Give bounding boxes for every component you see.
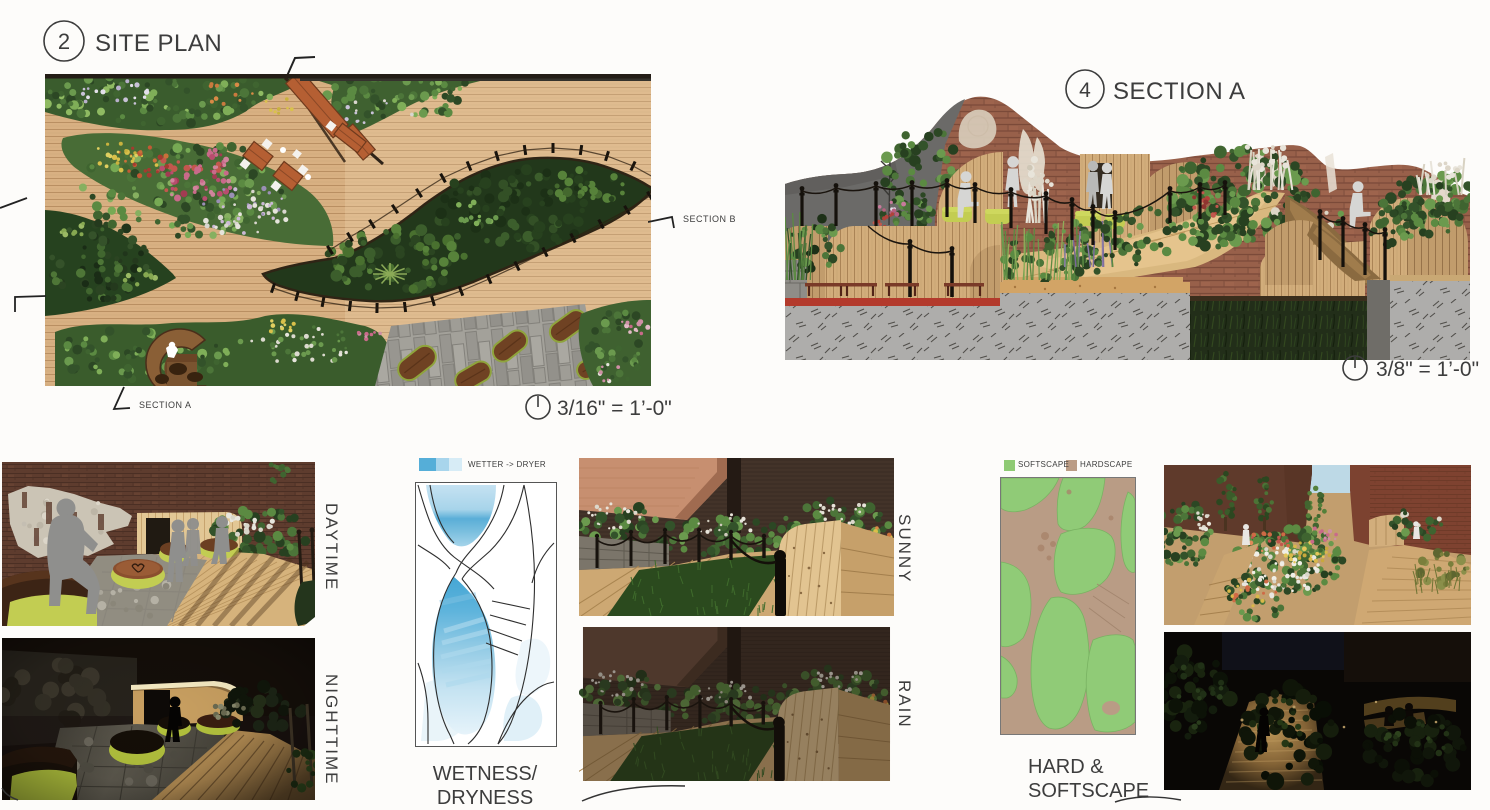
svg-text:2: 2 bbox=[58, 29, 70, 54]
